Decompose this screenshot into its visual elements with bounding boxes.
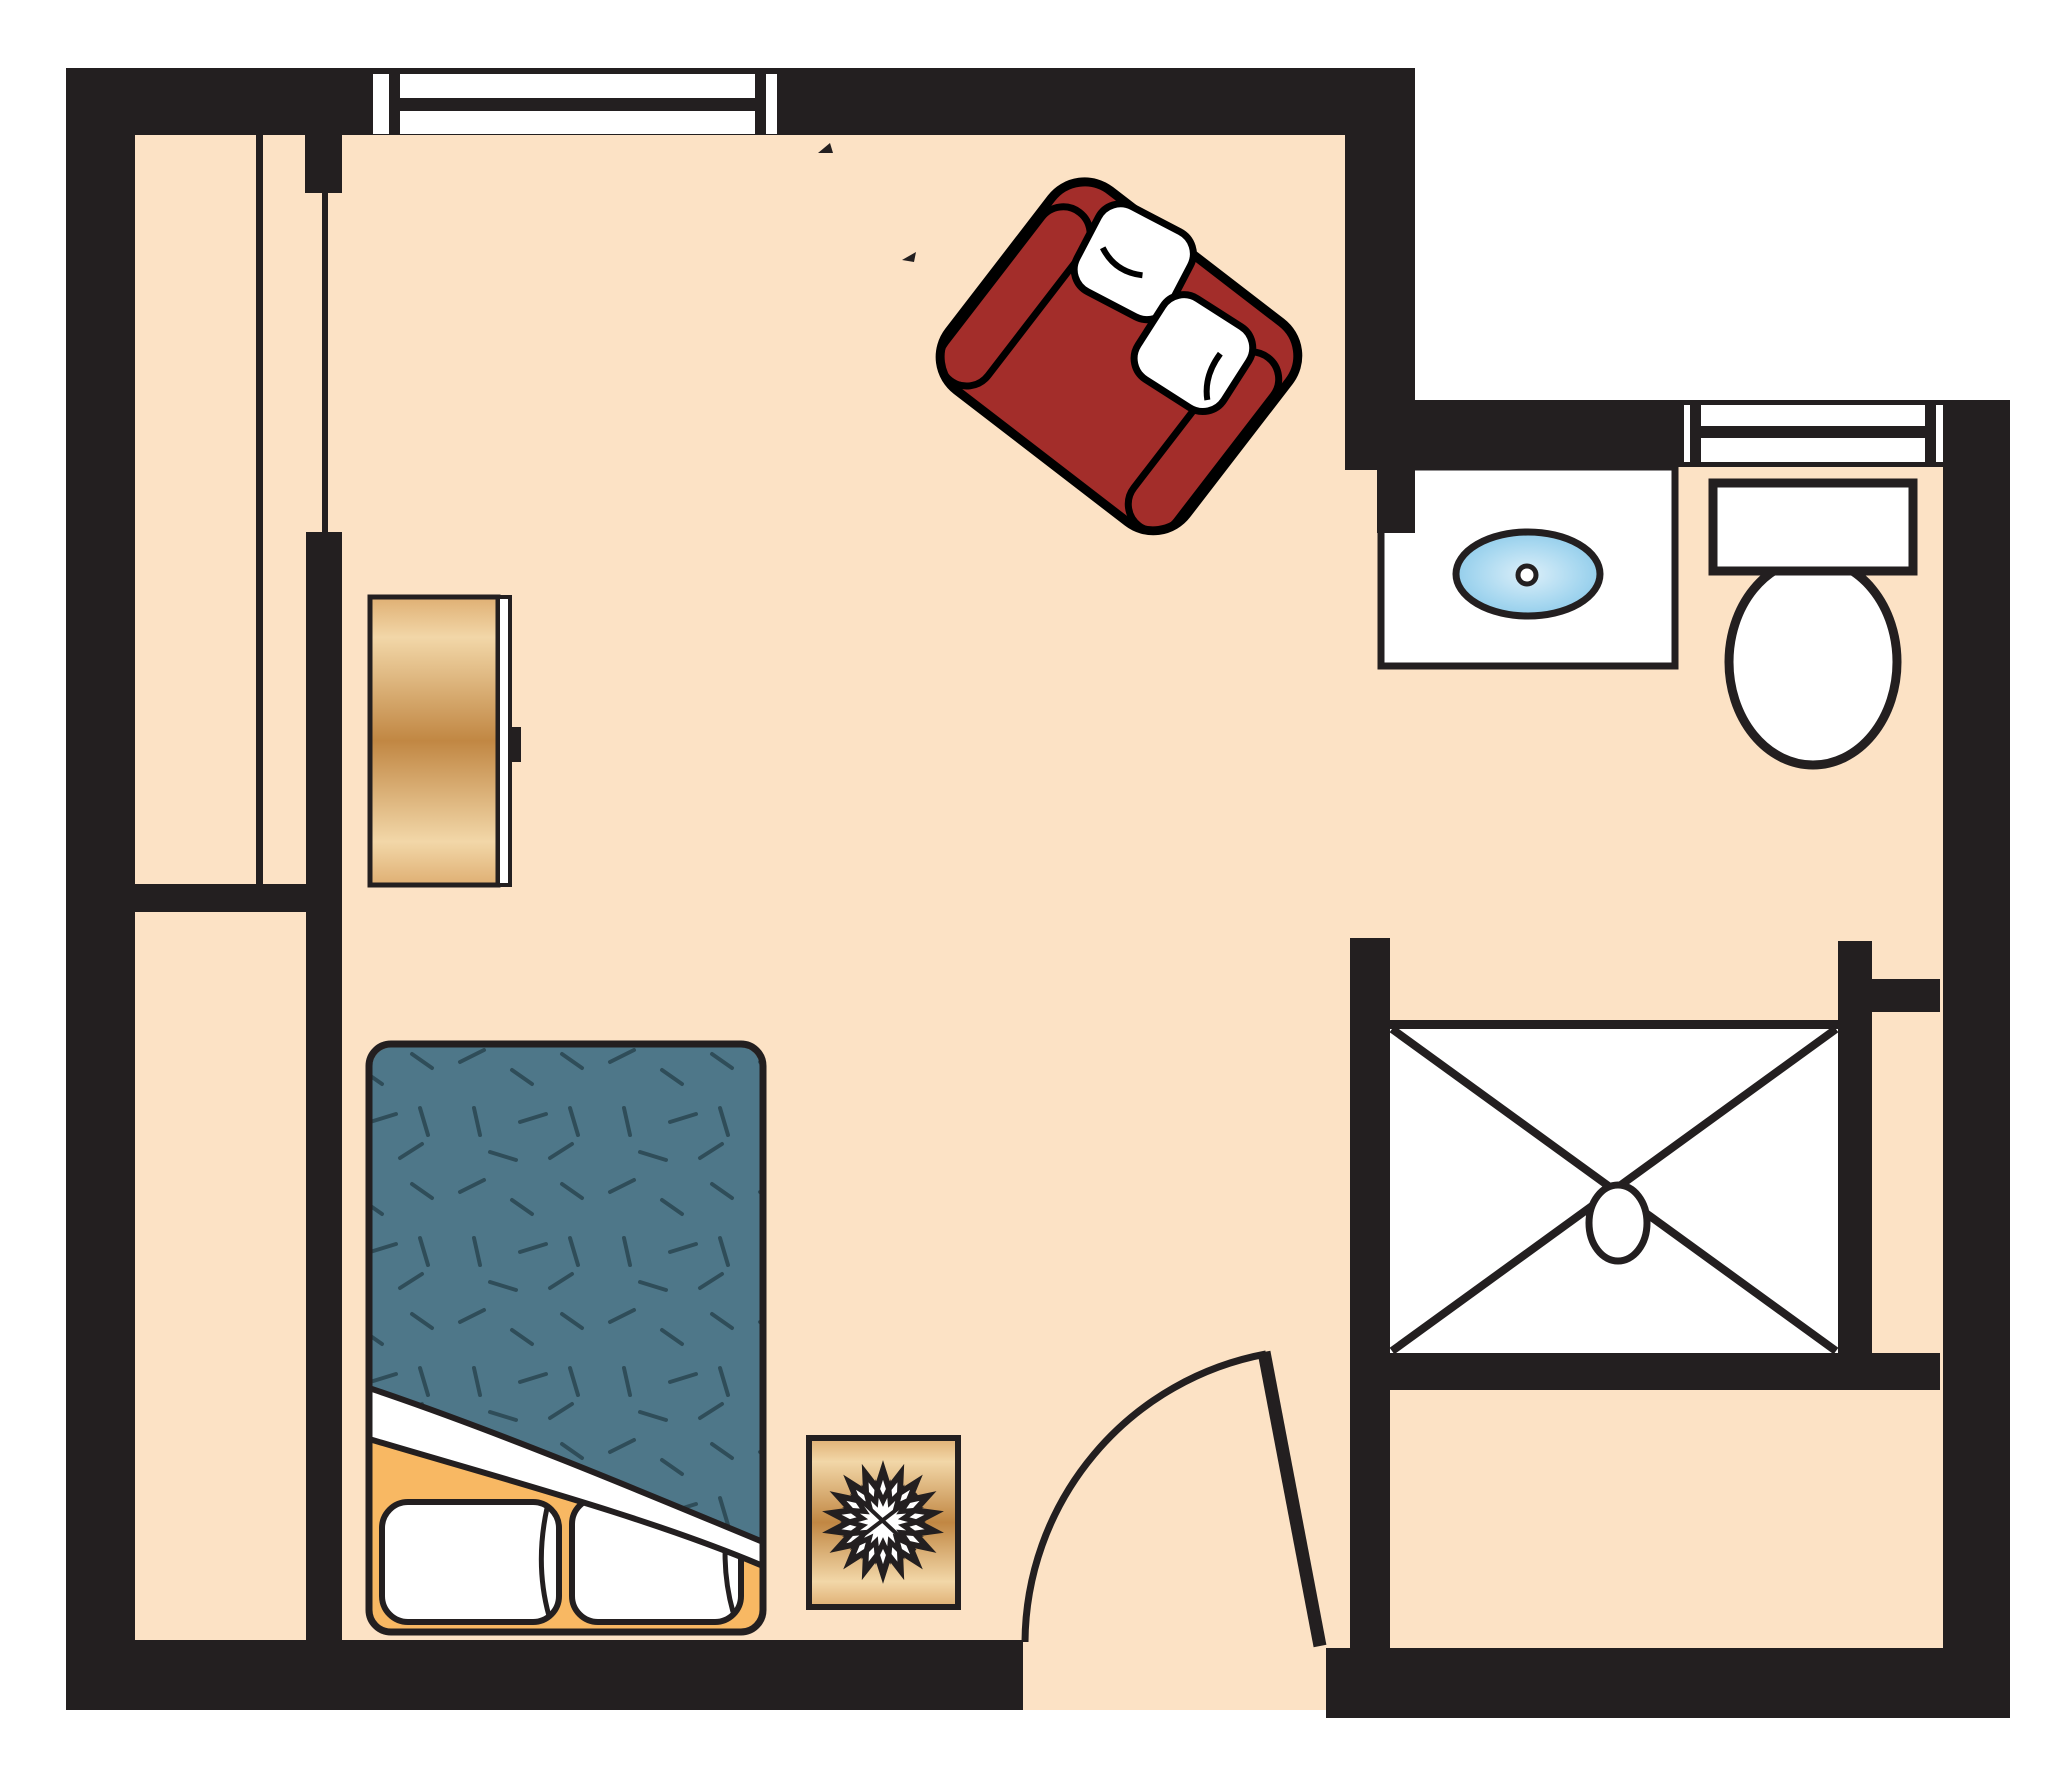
window-top bbox=[373, 74, 777, 134]
shower-drain-icon bbox=[1589, 1185, 1647, 1261]
wall-right bbox=[1943, 400, 2010, 1718]
window-jamb-left bbox=[1690, 405, 1701, 462]
window-jamb-left bbox=[389, 74, 400, 134]
window-mullion bbox=[400, 98, 755, 111]
floor-plan-canvas bbox=[0, 0, 2072, 1771]
wall-shower-connector bbox=[1872, 979, 1940, 1012]
toilet bbox=[1713, 483, 1913, 765]
sink-drain-icon bbox=[1518, 566, 1536, 584]
dresser bbox=[370, 597, 521, 885]
wall-shower-bottom bbox=[1350, 1353, 1940, 1390]
floor-plan-drawing bbox=[0, 0, 2072, 1771]
sink-vanity bbox=[1381, 467, 1675, 666]
sunburst-side-table bbox=[809, 1438, 958, 1607]
wall-bottom-right bbox=[1326, 1648, 2010, 1718]
wall-bottom-left bbox=[66, 1640, 1023, 1710]
closet-stub-left bbox=[135, 884, 312, 912]
window-jamb-right bbox=[755, 74, 766, 134]
wall-shower-left bbox=[1350, 938, 1390, 1648]
bed-pillow-left bbox=[382, 1502, 559, 1622]
shower-top-edge bbox=[1390, 1020, 1838, 1029]
closet-partition bbox=[306, 532, 342, 1648]
bed bbox=[369, 1044, 763, 1632]
shower-stall bbox=[1390, 1020, 1838, 1353]
closet-jamb-top bbox=[305, 135, 342, 193]
dresser-front-panel bbox=[498, 597, 510, 885]
closet-inner-line bbox=[256, 135, 263, 895]
toilet-bowl bbox=[1729, 559, 1897, 765]
dresser-knob bbox=[510, 727, 521, 762]
dresser-body bbox=[370, 597, 498, 885]
wall-left bbox=[66, 68, 135, 1710]
toilet-tank bbox=[1713, 483, 1913, 571]
window-mullion bbox=[1701, 426, 1925, 438]
wall-room-bath-divider bbox=[1345, 135, 1415, 470]
window-jamb-right bbox=[1925, 405, 1936, 462]
wall-bath-door-jamb bbox=[1377, 470, 1415, 533]
closet-door-line bbox=[322, 193, 328, 532]
window-bathroom bbox=[1684, 405, 1943, 462]
wall-shower-right bbox=[1838, 941, 1872, 1390]
